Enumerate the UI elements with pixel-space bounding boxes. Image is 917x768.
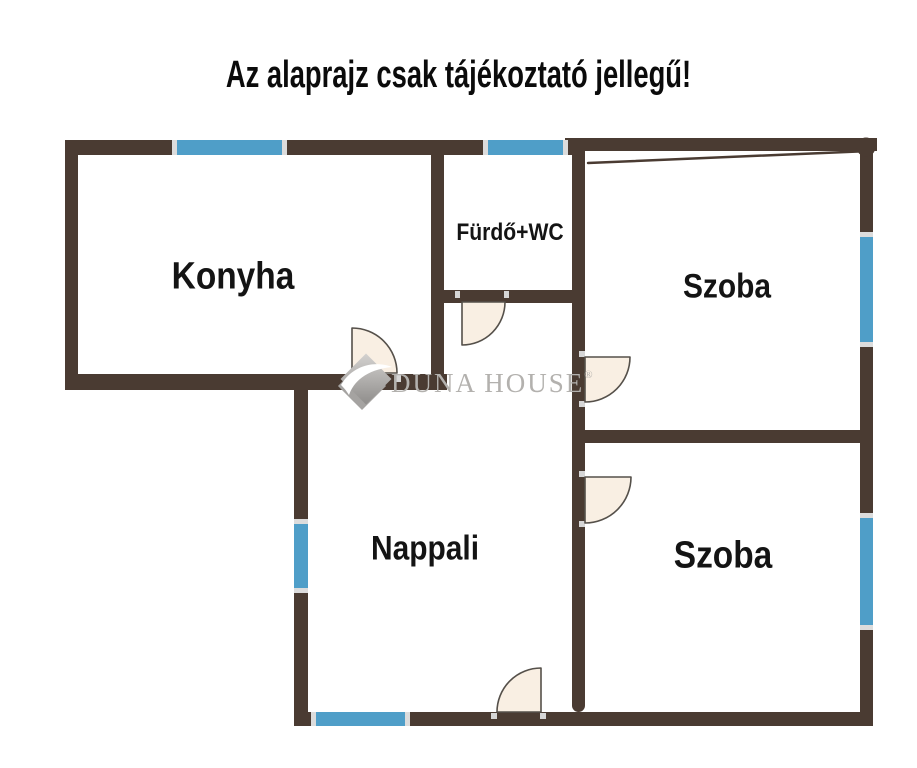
room-label-szoba-top: Szoba [683,268,771,307]
room-label-nappali: Nappali [371,530,479,569]
door-nappali-bottom [497,668,541,712]
disclaimer-title: Az alaprajz csak tájékoztató jellegű! [128,54,788,98]
wall-konyha-bottom [65,374,447,390]
window-szoba-top-right [860,237,873,342]
window-cap [860,342,873,347]
window-nappali-bottom [316,712,405,726]
watermark-brand-text: DUNA HOUSE® [391,368,593,399]
window-cap [860,625,873,630]
floorplan-canvas: Az alaprajz csak tájékoztató jellegű! [0,0,917,768]
door-szoba-bottom [585,477,631,523]
wall-furdo-left [431,152,444,374]
window-nappali-left [294,524,308,588]
registered-mark: ® [584,369,592,381]
window-cap [294,588,308,593]
door-furdo-wc [462,302,505,345]
window-cap [282,140,287,155]
watermark-brand: DUNA HOUSE [391,368,584,398]
window-konyha-top [177,140,282,155]
wall-between-szoba-rooms [585,430,873,443]
window-cap [405,712,410,726]
window-szoba-bottom-right [860,518,873,625]
window-cap [563,140,568,155]
door-jamb-marks [346,291,585,719]
window-furdo-top [488,140,563,155]
wall-top-right-section [565,138,877,151]
wall-central-vertical [572,140,585,712]
wall-furdo-bottom [444,290,572,303]
room-label-furdo-wc: Fürdő+WC [456,219,563,247]
room-label-konyha: Konyha [172,256,295,299]
door-konyha [352,328,397,373]
room-label-szoba-bottom: Szoba [674,535,772,578]
wall-outer-left [65,140,78,390]
wedge-line [588,152,858,164]
wall-outer-right [860,140,873,726]
